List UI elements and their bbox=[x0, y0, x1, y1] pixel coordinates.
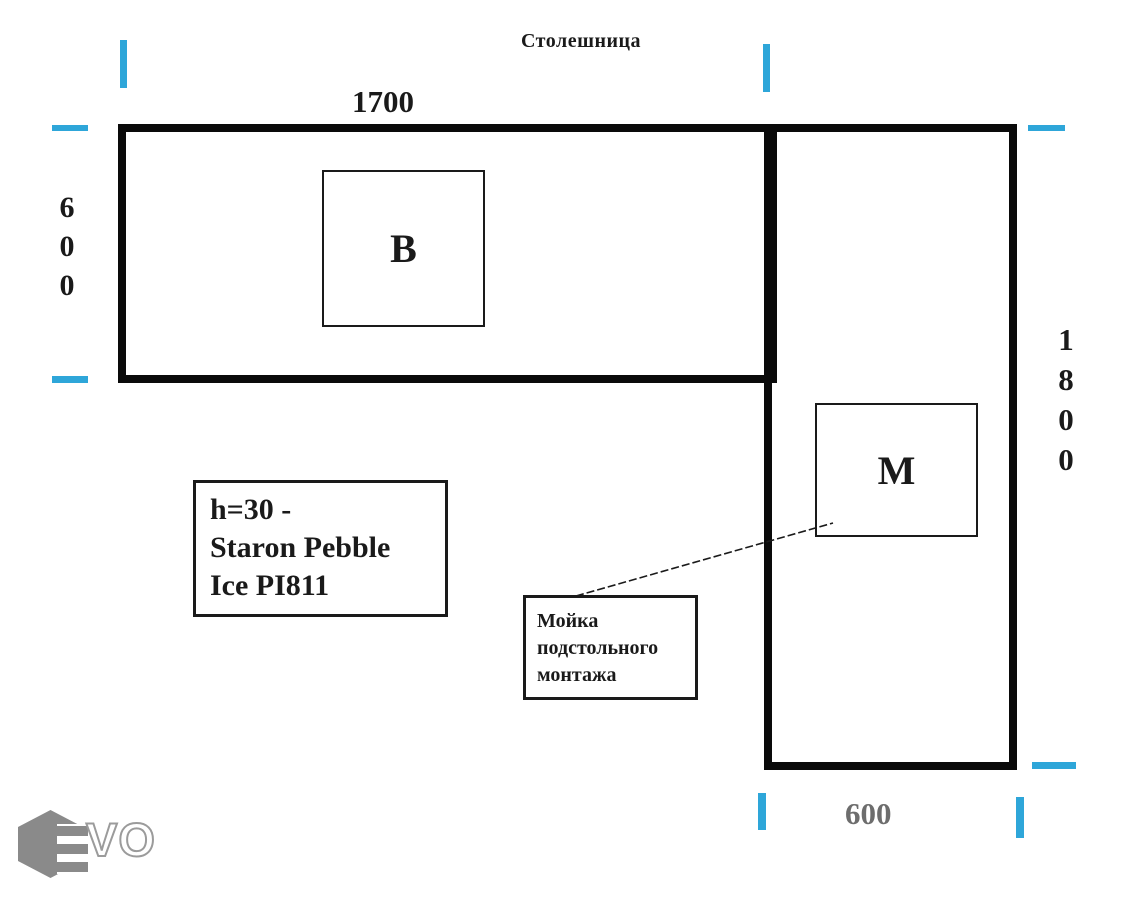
dim-top-width: 1700 bbox=[352, 84, 414, 120]
sink-note: Мойка подстольного монтажа bbox=[523, 595, 698, 700]
sink-cutout: М bbox=[815, 403, 978, 537]
material-note-line: Staron Pebble bbox=[210, 529, 441, 567]
cooktop-cutout: В bbox=[322, 170, 485, 327]
material-note-line: h=30 - bbox=[210, 491, 441, 529]
dim-tick-bottom-left bbox=[758, 793, 766, 830]
dim-left-depth: 600 bbox=[55, 188, 79, 305]
sink-note-line: монтажа bbox=[537, 662, 691, 689]
material-note-line: Ice PI811 bbox=[210, 567, 441, 605]
logo-letters: VO bbox=[86, 812, 156, 868]
dim-tick-top-left bbox=[120, 40, 127, 88]
material-note: h=30 - Staron Pebble Ice PI811 bbox=[193, 480, 448, 617]
dim-right-height: 1800 bbox=[1054, 320, 1078, 480]
logo-e-bar bbox=[57, 844, 88, 854]
page-title: Столешница bbox=[521, 30, 641, 53]
cooktop-label: В bbox=[390, 225, 417, 272]
dim-tick-right-top bbox=[1028, 125, 1065, 131]
sink-note-line: Мойка bbox=[537, 608, 691, 635]
sink-label: М bbox=[878, 447, 916, 494]
dim-tick-top-center bbox=[763, 44, 770, 92]
sink-note-line: подстольного bbox=[537, 635, 691, 662]
dim-tick-right-bottom bbox=[1032, 762, 1076, 769]
dim-tick-bottom-right bbox=[1016, 797, 1024, 838]
logo-e-bar bbox=[57, 862, 88, 872]
logo-e-bar bbox=[57, 826, 88, 836]
dim-tick-left-bottom bbox=[52, 376, 88, 383]
dim-tick-left-top bbox=[52, 125, 88, 131]
evo-logo: VO bbox=[18, 810, 168, 878]
countertop-drawing: Столешница 1700 600 1800 600 В М h=30 - … bbox=[0, 0, 1137, 900]
dim-bottom-width: 600 bbox=[845, 796, 892, 832]
